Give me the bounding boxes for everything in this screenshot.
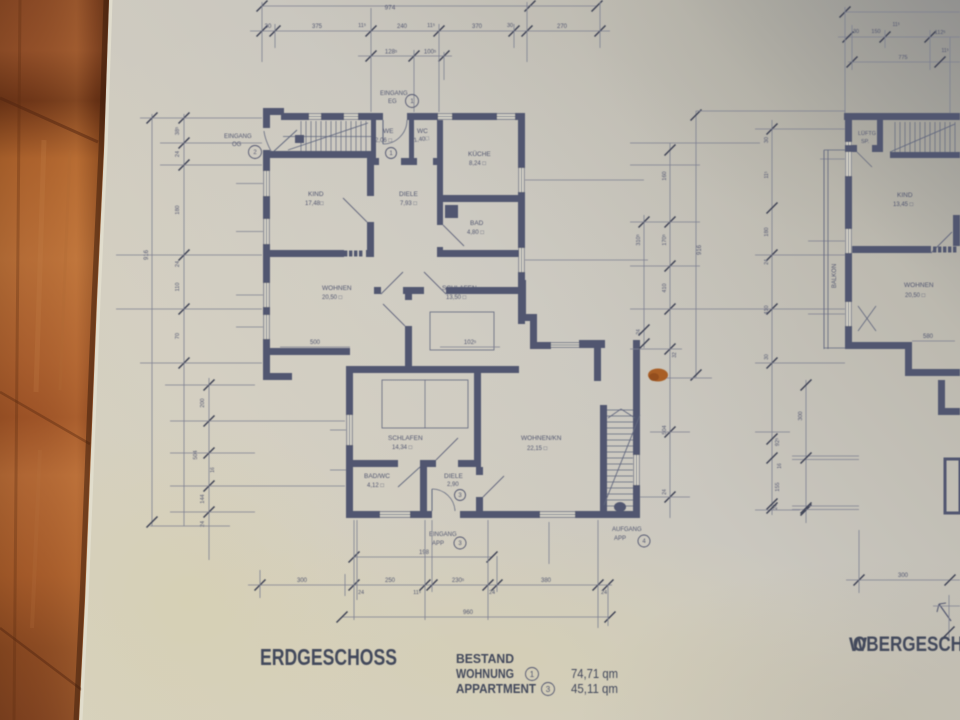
svg-text:WE: WE <box>383 128 394 135</box>
svg-text:160: 160 <box>662 171 668 180</box>
svg-text:240: 240 <box>397 24 408 30</box>
svg-text:180: 180 <box>764 227 770 236</box>
svg-text:30: 30 <box>764 354 770 360</box>
svg-text:45,11 qm: 45,11 qm <box>571 682 618 696</box>
svg-text:2,90: 2,90 <box>447 482 459 488</box>
svg-text:AUFGANG: AUFGANG <box>612 527 642 533</box>
svg-text:775: 775 <box>898 55 907 61</box>
svg-text:24: 24 <box>489 590 495 596</box>
svg-text:30: 30 <box>265 24 272 30</box>
svg-text:4,12 □: 4,12 □ <box>367 483 384 489</box>
svg-text:30: 30 <box>764 137 770 143</box>
svg-text:370: 370 <box>472 24 483 30</box>
svg-text:380: 380 <box>541 578 552 584</box>
svg-text:APP: APP <box>614 536 626 542</box>
svg-text:3: 3 <box>546 685 551 694</box>
svg-text:BAD/WC: BAD/WC <box>364 473 390 480</box>
svg-text:KÜCHE: KÜCHE <box>468 150 491 158</box>
svg-text:SP.: SP. <box>861 139 870 145</box>
svg-text:144: 144 <box>200 494 206 503</box>
svg-text:198: 198 <box>419 550 430 556</box>
svg-text:504: 504 <box>193 450 199 459</box>
svg-text:180: 180 <box>175 205 181 214</box>
svg-text:300: 300 <box>898 573 909 579</box>
svg-text:14,34 □: 14,34 □ <box>392 445 413 451</box>
svg-text:7,93 □: 7,93 □ <box>400 201 417 207</box>
svg-text:LÜFTG: LÜFTG <box>858 130 876 137</box>
svg-text:SCHLAFEN: SCHLAFEN <box>442 285 477 292</box>
svg-text:24: 24 <box>601 590 607 596</box>
svg-text:24: 24 <box>175 151 181 157</box>
svg-text:BAD: BAD <box>470 220 484 227</box>
svg-text:20,50 □: 20,50 □ <box>322 295 343 301</box>
svg-text:375: 375 <box>312 24 323 30</box>
svg-text:155: 155 <box>775 482 781 491</box>
svg-text:24: 24 <box>636 329 642 335</box>
svg-text:BESTAND: BESTAND <box>456 651 514 666</box>
svg-text:WC: WC <box>417 128 428 135</box>
svg-text:EINGANG: EINGANG <box>380 91 408 97</box>
svg-text:ERDGESCHOSS: ERDGESCHOSS <box>260 644 397 670</box>
svg-text:DIELE: DIELE <box>399 191 418 198</box>
svg-text:974: 974 <box>385 5 396 12</box>
svg-text:8,24 □: 8,24 □ <box>469 161 486 167</box>
svg-text:24: 24 <box>358 590 364 596</box>
svg-text:WOHNEN/KN: WOHNEN/KN <box>521 435 562 442</box>
svg-text:24: 24 <box>764 259 770 265</box>
svg-text:EG: EG <box>388 99 397 105</box>
svg-text:4,80 □: 4,80 □ <box>467 230 484 236</box>
svg-text:300: 300 <box>798 411 804 420</box>
svg-text:580: 580 <box>923 334 934 340</box>
svg-text:16: 16 <box>210 467 216 473</box>
svg-text:WOHNEN: WOHNEN <box>322 285 352 292</box>
svg-text:13,45 □: 13,45 □ <box>893 202 914 208</box>
svg-text:1: 1 <box>530 670 535 679</box>
svg-text:916: 916 <box>697 244 703 255</box>
svg-text:32: 32 <box>672 352 678 358</box>
svg-text:WOHNEN: WOHNEN <box>904 282 934 289</box>
svg-text:2,06 □: 2,06 □ <box>375 138 392 144</box>
svg-text:410: 410 <box>764 305 770 314</box>
svg-text:270: 270 <box>557 24 568 30</box>
svg-text:150: 150 <box>871 29 880 35</box>
svg-text:70: 70 <box>175 333 181 339</box>
svg-text:APP: APP <box>432 541 444 547</box>
svg-text:13,50 □: 13,50 □ <box>446 295 467 301</box>
svg-text:24: 24 <box>175 261 181 267</box>
svg-text:BALKON: BALKON <box>832 264 838 288</box>
svg-text:SCHLAFEN: SCHLAFEN <box>388 435 423 442</box>
svg-text:960: 960 <box>463 610 474 616</box>
svg-text:KIND: KIND <box>897 192 913 199</box>
svg-text:504: 504 <box>662 425 668 434</box>
svg-text:EINGANG: EINGANG <box>429 532 457 538</box>
svg-text:410: 410 <box>662 283 668 292</box>
svg-text:KIND: KIND <box>308 191 324 198</box>
svg-text:16: 16 <box>777 463 783 469</box>
svg-text:500: 500 <box>310 340 321 346</box>
svg-text:74,71 qm: 74,71 qm <box>571 667 618 681</box>
svg-text:22,15 □: 22,15 □ <box>527 446 548 452</box>
svg-text:WOHNUNG: WOHNUNG <box>456 666 514 681</box>
svg-text:30: 30 <box>507 23 513 29</box>
svg-text:EINGANG: EINGANG <box>224 134 252 140</box>
svg-text:250: 250 <box>385 578 396 584</box>
svg-text:20,50 □: 20,50 □ <box>905 293 926 299</box>
svg-text:24: 24 <box>662 489 668 495</box>
svg-text:300: 300 <box>297 578 308 584</box>
svg-text:30: 30 <box>853 29 859 35</box>
svg-text:110: 110 <box>175 283 181 292</box>
svg-text:17,48□: 17,48□ <box>305 201 324 207</box>
svg-text:OBERGESCH: OBERGESCH <box>853 633 960 656</box>
svg-text:OG: OG <box>232 142 242 148</box>
svg-text:DIELE: DIELE <box>444 473 463 480</box>
svg-text:APPARTMENT: APPARTMENT <box>456 681 536 696</box>
svg-text:200: 200 <box>200 398 206 407</box>
svg-text:W: W <box>849 635 867 656</box>
